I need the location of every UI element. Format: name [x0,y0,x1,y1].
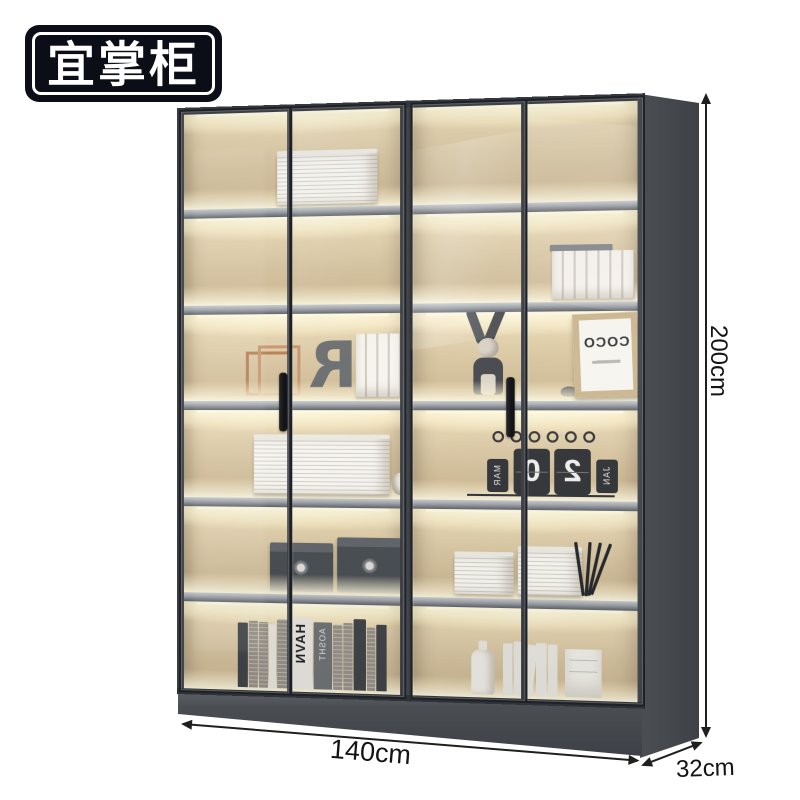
width-dimension-label: 140cm [329,734,412,771]
depth-dimension-label: 32cm [676,754,736,784]
brand-logo-text: 宜掌柜 [47,39,200,89]
cabinet-side-panel [640,90,699,760]
brand-logo: 宜掌柜 [25,25,222,102]
arrowhead-icon [701,93,711,104]
arrowhead-icon [639,757,653,770]
cabinet-front: R HIRA COCO [177,93,645,709]
door-handle [279,373,287,432]
arrowhead-icon [181,719,193,730]
height-dimension-label: 200cm [704,306,732,416]
glass-door [525,95,645,706]
door-handle [506,377,515,437]
arrowhead-icon [691,737,705,750]
product-image: R HIRA COCO [0,0,800,800]
glass-door [179,106,291,695]
glass-door [290,103,406,699]
arrowhead-icon [701,727,711,738]
